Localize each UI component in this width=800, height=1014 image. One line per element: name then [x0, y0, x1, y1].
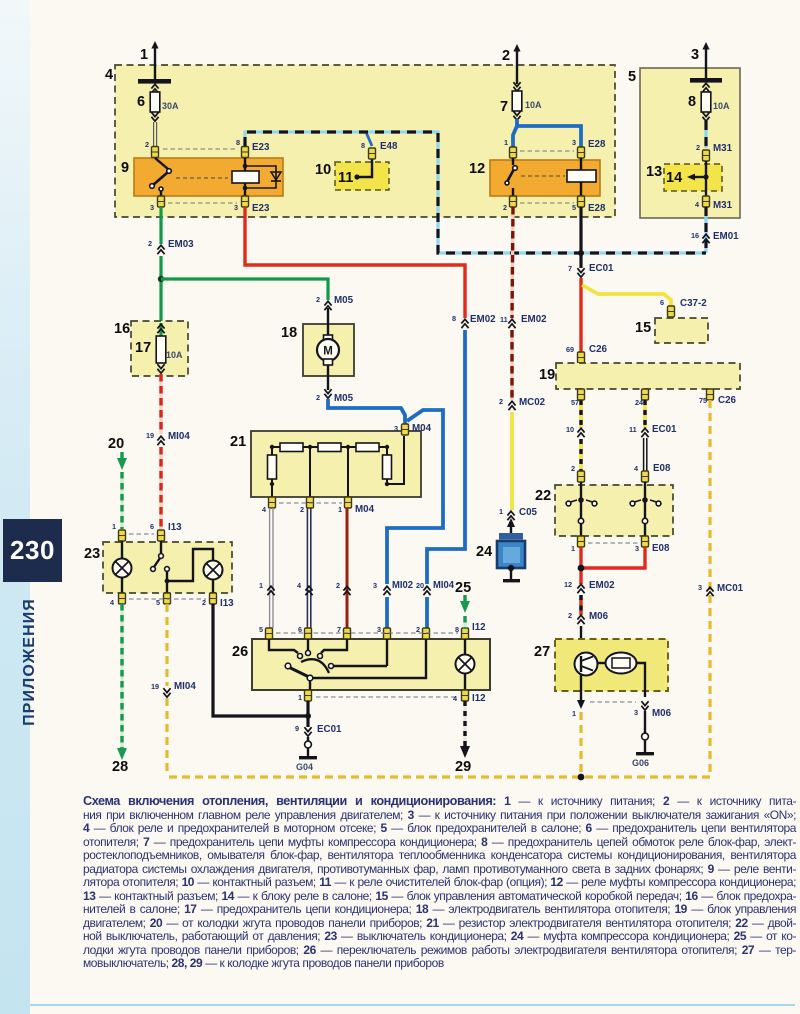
svg-text:2: 2 — [568, 611, 572, 620]
svg-text:19: 19 — [146, 431, 154, 440]
svg-text:E08: E08 — [652, 543, 670, 554]
svg-text:30A: 30A — [162, 101, 179, 111]
svg-text:10A: 10A — [713, 101, 730, 111]
svg-text:2: 2 — [202, 598, 206, 607]
svg-text:I12: I12 — [472, 622, 486, 633]
svg-text:16: 16 — [114, 321, 130, 337]
svg-text:C26: C26 — [718, 395, 737, 406]
svg-text:I13: I13 — [168, 522, 182, 533]
svg-text:M05: M05 — [334, 393, 354, 404]
svg-text:3: 3 — [635, 544, 639, 553]
svg-text:2: 2 — [571, 464, 575, 473]
svg-text:2: 2 — [316, 295, 320, 304]
svg-text:MC01: MC01 — [717, 583, 744, 594]
svg-text:MC02: MC02 — [519, 397, 546, 408]
svg-text:M06: M06 — [652, 708, 672, 719]
svg-text:8: 8 — [688, 94, 696, 110]
svg-text:2: 2 — [148, 239, 152, 248]
svg-text:3: 3 — [394, 424, 398, 433]
svg-text:69: 69 — [566, 345, 574, 354]
svg-text:M31: M31 — [713, 143, 733, 154]
svg-text:4: 4 — [297, 581, 302, 590]
svg-text:EM02: EM02 — [521, 314, 547, 325]
svg-text:4: 4 — [634, 464, 639, 473]
svg-text:15: 15 — [635, 320, 651, 336]
svg-text:6: 6 — [150, 522, 154, 531]
svg-text:C05: C05 — [519, 507, 538, 518]
svg-text:3: 3 — [373, 581, 377, 590]
svg-text:2: 2 — [316, 393, 320, 402]
svg-text:9: 9 — [295, 724, 299, 733]
svg-text:16: 16 — [691, 231, 699, 240]
svg-text:M05: M05 — [334, 295, 354, 306]
svg-text:5: 5 — [628, 69, 636, 85]
svg-text:EM01: EM01 — [713, 231, 739, 242]
svg-text:G06: G06 — [632, 758, 649, 768]
svg-text:1: 1 — [499, 507, 503, 516]
svg-text:19: 19 — [151, 682, 159, 691]
svg-text:E28: E28 — [588, 203, 606, 214]
svg-text:C26: C26 — [589, 344, 608, 355]
svg-text:I12: I12 — [472, 693, 486, 704]
svg-text:24: 24 — [635, 398, 644, 407]
svg-text:M04: M04 — [355, 504, 375, 515]
svg-text:E28: E28 — [588, 139, 606, 150]
svg-text:M04: M04 — [412, 423, 432, 434]
svg-text:E23: E23 — [252, 203, 270, 214]
svg-text:3: 3 — [691, 47, 699, 63]
svg-text:3: 3 — [634, 708, 638, 717]
svg-text:7: 7 — [568, 264, 572, 273]
svg-text:27: 27 — [534, 644, 550, 660]
svg-text:22: 22 — [535, 488, 551, 504]
svg-text:M: M — [323, 346, 333, 358]
svg-text:13: 13 — [646, 164, 662, 180]
svg-text:10: 10 — [566, 425, 574, 434]
svg-text:8: 8 — [236, 138, 240, 147]
svg-text:25: 25 — [455, 580, 471, 596]
svg-text:1: 1 — [338, 505, 342, 514]
svg-text:6: 6 — [137, 94, 145, 110]
svg-text:EC01: EC01 — [589, 263, 614, 274]
svg-text:29: 29 — [455, 759, 471, 775]
svg-text:6: 6 — [660, 298, 664, 307]
svg-text:18: 18 — [281, 325, 297, 341]
svg-text:4: 4 — [262, 505, 267, 514]
svg-text:26: 26 — [232, 644, 248, 660]
svg-text:1: 1 — [571, 544, 575, 553]
svg-text:2: 2 — [145, 140, 149, 149]
svg-text:17: 17 — [135, 340, 151, 356]
svg-text:24: 24 — [476, 544, 492, 560]
svg-text:E48: E48 — [380, 141, 398, 152]
svg-text:MI04: MI04 — [168, 431, 190, 442]
svg-text:5: 5 — [572, 203, 576, 212]
svg-text:5: 5 — [259, 625, 263, 634]
svg-text:5: 5 — [156, 598, 160, 607]
svg-text:2: 2 — [502, 48, 510, 64]
svg-text:11: 11 — [629, 425, 637, 434]
svg-text:G04: G04 — [296, 762, 313, 772]
svg-text:10A: 10A — [525, 100, 542, 110]
svg-text:1: 1 — [140, 47, 148, 63]
svg-text:8: 8 — [361, 141, 365, 150]
svg-text:4: 4 — [110, 598, 115, 607]
svg-text:4: 4 — [105, 67, 113, 83]
svg-text:E08: E08 — [653, 463, 671, 474]
svg-text:10A: 10A — [166, 350, 183, 360]
svg-text:11: 11 — [500, 315, 508, 324]
svg-text:8: 8 — [452, 314, 456, 323]
svg-text:EM02: EM02 — [470, 314, 496, 325]
svg-text:7: 7 — [500, 99, 508, 115]
svg-text:1: 1 — [572, 709, 576, 718]
svg-text:4: 4 — [453, 694, 458, 703]
svg-text:2: 2 — [300, 505, 304, 514]
svg-text:10: 10 — [315, 162, 331, 178]
svg-text:MI04: MI04 — [174, 681, 196, 692]
svg-text:3: 3 — [234, 203, 238, 212]
svg-text:2: 2 — [499, 397, 503, 406]
svg-text:M06: M06 — [589, 611, 609, 622]
svg-text:1: 1 — [298, 693, 302, 702]
svg-text:20: 20 — [108, 436, 124, 452]
svg-text:EM02: EM02 — [589, 580, 615, 591]
svg-text:2: 2 — [696, 143, 700, 152]
svg-text:21: 21 — [230, 434, 246, 450]
svg-text:9: 9 — [121, 160, 129, 176]
svg-text:19: 19 — [539, 367, 555, 383]
svg-text:C37-2: C37-2 — [680, 298, 707, 309]
svg-text:12: 12 — [469, 161, 485, 177]
svg-text:3: 3 — [698, 583, 702, 592]
svg-text:3: 3 — [572, 138, 576, 147]
svg-text:2: 2 — [503, 203, 507, 212]
svg-text:1: 1 — [112, 522, 116, 531]
svg-text:57: 57 — [571, 398, 579, 407]
svg-text:MI04: MI04 — [433, 580, 455, 591]
svg-text:28: 28 — [112, 759, 128, 775]
svg-text:EC01: EC01 — [317, 724, 342, 735]
svg-text:EC01: EC01 — [652, 424, 677, 435]
svg-text:M31: M31 — [713, 200, 733, 211]
svg-text:1: 1 — [259, 581, 263, 590]
svg-text:23: 23 — [84, 546, 100, 562]
svg-text:E23: E23 — [252, 142, 270, 153]
svg-text:MI02: MI02 — [392, 580, 414, 591]
svg-text:75: 75 — [699, 396, 707, 405]
svg-text:12: 12 — [564, 580, 572, 589]
svg-text:3: 3 — [150, 203, 154, 212]
svg-text:11: 11 — [338, 170, 353, 186]
svg-text:I13: I13 — [220, 598, 234, 609]
svg-text:EM03: EM03 — [168, 239, 194, 250]
svg-text:20: 20 — [416, 581, 424, 590]
svg-text:2: 2 — [336, 581, 340, 590]
svg-text:1: 1 — [504, 138, 508, 147]
svg-text:14: 14 — [666, 170, 682, 186]
